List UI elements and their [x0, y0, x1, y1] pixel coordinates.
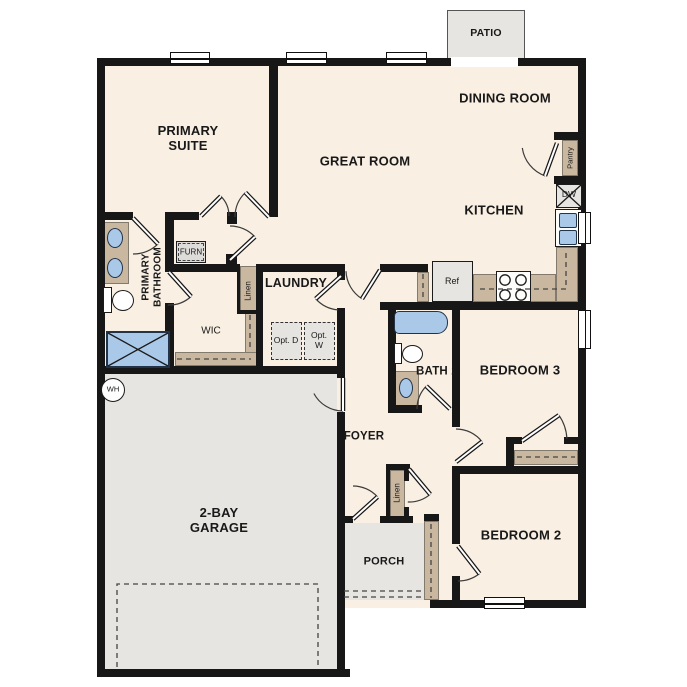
- wall: [506, 437, 522, 444]
- wall: [404, 507, 409, 518]
- linen-hall-label: Linen: [243, 281, 252, 301]
- window: [578, 310, 591, 349]
- dining-room-label: DINING ROOM: [459, 92, 551, 107]
- kitchen-sink-basin-1: [559, 213, 577, 228]
- bath2-toilet-bowl: [402, 345, 423, 363]
- cabinetry: [175, 352, 257, 366]
- wall: [165, 264, 240, 272]
- bath2-label: BATH 2: [416, 365, 458, 378]
- wall: [386, 470, 390, 518]
- wall: [452, 466, 586, 474]
- wall: [424, 514, 439, 521]
- opt-dryer-label: Opt. D: [273, 336, 299, 346]
- window: [484, 597, 525, 609]
- bath2-vanity-sink: [399, 378, 413, 398]
- wall: [165, 212, 174, 272]
- bedroom3-label: BEDROOM 3: [480, 364, 561, 379]
- shower: [106, 331, 170, 368]
- foyer-label: FOYER: [344, 430, 385, 443]
- primary-suite-label: PRIMARY SUITE: [142, 124, 234, 154]
- wall: [564, 437, 578, 444]
- primary-toilet-tank: [103, 287, 112, 313]
- wall: [380, 302, 586, 310]
- wall: [269, 66, 278, 217]
- patio-slider-door: [451, 57, 518, 67]
- wall: [105, 212, 133, 220]
- wall: [554, 132, 586, 140]
- cabinetry: [556, 247, 578, 302]
- cabinetry: [514, 450, 578, 465]
- wall: [97, 58, 105, 677]
- wall: [452, 576, 460, 608]
- bedroom2-label: BEDROOM 2: [481, 529, 562, 544]
- bath2-toilet-tank: [394, 343, 402, 364]
- garage-label: 2-BAY GARAGE: [175, 506, 263, 536]
- primary-vanity-sink-2: [107, 258, 123, 278]
- bathtub: [394, 311, 448, 334]
- floor-plan: PATIO DINING ROOM GREAT ROOM PRIMARY SUI…: [0, 0, 687, 687]
- wall: [337, 264, 345, 280]
- linen-foyer-label: Linen: [392, 483, 401, 503]
- cabinetry: [424, 521, 439, 600]
- stove: [496, 271, 531, 302]
- wic-label: WIC: [201, 325, 220, 337]
- wall: [237, 266, 240, 312]
- refrigerator-label: Ref: [445, 276, 459, 286]
- great-room-label: GREAT ROOM: [320, 155, 411, 170]
- window: [578, 212, 591, 244]
- patio-label: PATIO: [470, 27, 502, 39]
- wall: [257, 264, 338, 272]
- opt-washer-label: Opt. W: [306, 331, 332, 351]
- wall: [554, 176, 586, 184]
- laundry-label: LAUNDRY: [265, 276, 327, 290]
- kitchen-sink-basin-2: [559, 230, 577, 245]
- wall: [404, 470, 409, 481]
- water-heater-label: WH: [107, 386, 120, 395]
- wall: [97, 669, 350, 677]
- window: [170, 52, 210, 64]
- wall: [337, 412, 345, 677]
- kitchen-label: KITCHEN: [464, 204, 523, 219]
- wall: [337, 308, 345, 378]
- wall: [237, 310, 259, 314]
- wall: [380, 264, 428, 272]
- cabinetry: [417, 272, 429, 302]
- wall: [337, 516, 353, 523]
- primary-bathroom-label: PRIMARY BATHROOM: [141, 225, 164, 329]
- window: [386, 52, 427, 64]
- porch-label: PORCH: [364, 556, 405, 569]
- wall: [388, 405, 422, 413]
- wall: [256, 264, 263, 366]
- furnace-label: FURN: [180, 247, 202, 256]
- primary-toilet-bowl: [112, 290, 134, 311]
- primary-vanity-sink-1: [107, 228, 123, 248]
- pantry-label: Pantry: [567, 147, 576, 169]
- dishwasher-label: DW: [562, 190, 576, 200]
- wall: [452, 474, 460, 544]
- wall: [227, 212, 237, 224]
- window: [286, 52, 327, 64]
